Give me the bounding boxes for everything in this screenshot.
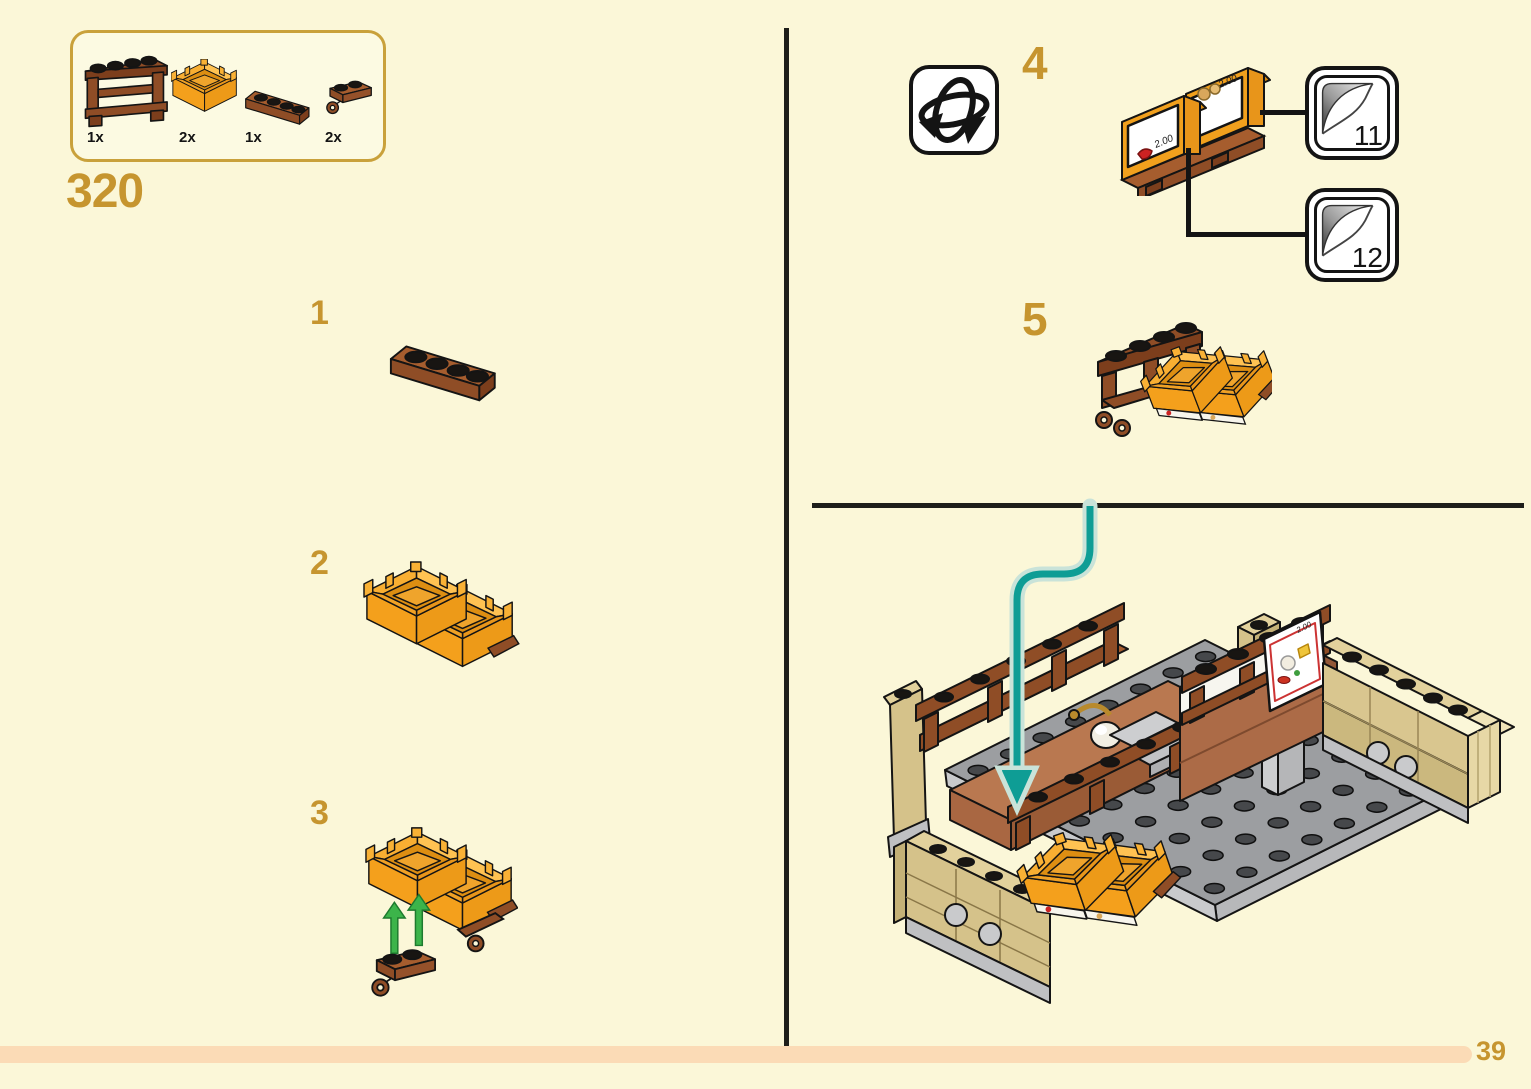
parts-panel: 1x 2x 1x 2x — [70, 30, 386, 162]
horizontal-divider — [812, 503, 1524, 508]
part-count: 2x — [325, 129, 342, 146]
page-number: 39 — [1476, 1036, 1506, 1067]
step2-crates-image — [362, 560, 520, 676]
step-number-1: 1 — [310, 294, 329, 333]
part-fence-image — [81, 53, 177, 131]
placement-arrow — [930, 498, 1130, 833]
callout-line-12-horizontal — [1186, 232, 1307, 237]
part-plate-image — [241, 83, 323, 129]
part-count: 1x — [87, 129, 104, 146]
footer-bar — [0, 1046, 1472, 1063]
step3-assembly-image — [356, 822, 518, 1014]
instruction-page: 1x 2x 1x 2x 320 1 2 3 — [0, 0, 1531, 1089]
part-count: 1x — [245, 129, 262, 146]
rotate-model-icon — [906, 62, 1002, 158]
step-id: 320 — [66, 164, 143, 219]
sticker-callout-12: 12 — [1305, 188, 1399, 282]
step-number-3: 3 — [310, 794, 329, 833]
step1-plate-image — [383, 333, 518, 408]
step5-assembly-image — [1082, 316, 1272, 478]
part-clip-plate-image — [321, 79, 379, 117]
callout-line-11 — [1260, 110, 1307, 115]
step4-crates-stickered-image: 2.00 2.00 — [1116, 62, 1284, 196]
sticker-callout-11: 11 — [1305, 66, 1399, 160]
part-crate-image — [171, 59, 241, 117]
callout-line-12-vertical — [1186, 148, 1191, 237]
part-count: 2x — [179, 129, 196, 146]
step-number-5: 5 — [1022, 292, 1048, 346]
step-number-4: 4 — [1022, 36, 1048, 90]
step-number-2: 2 — [310, 544, 329, 583]
sticker-number: 11 — [1354, 120, 1383, 152]
vertical-divider — [784, 28, 789, 1046]
sticker-number: 12 — [1352, 242, 1383, 274]
